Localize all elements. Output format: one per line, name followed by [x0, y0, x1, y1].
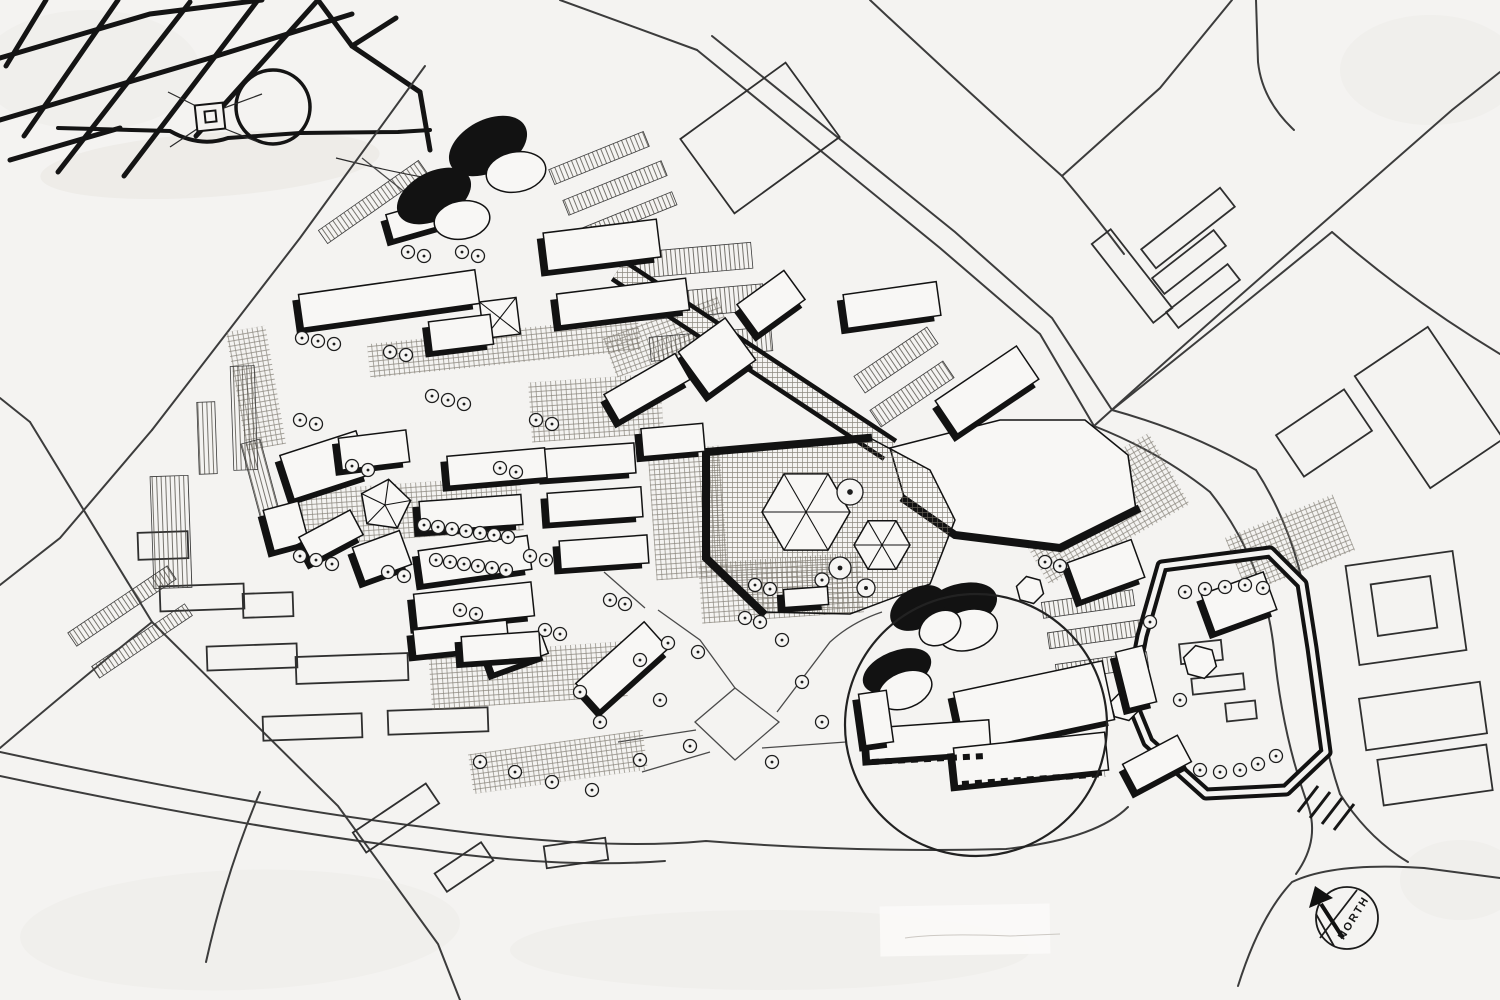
- north-arrow: NORTH: [1309, 886, 1378, 949]
- plan-render-root: [0, 0, 1500, 1000]
- erased-label-patch: [880, 904, 1051, 957]
- masterplan-drawing: NORTH: [0, 0, 1500, 1000]
- key-map-site-symbol: [195, 103, 226, 132]
- site-plan-svg: NORTH: [0, 0, 1500, 1000]
- north-label: NORTH: [1336, 894, 1372, 942]
